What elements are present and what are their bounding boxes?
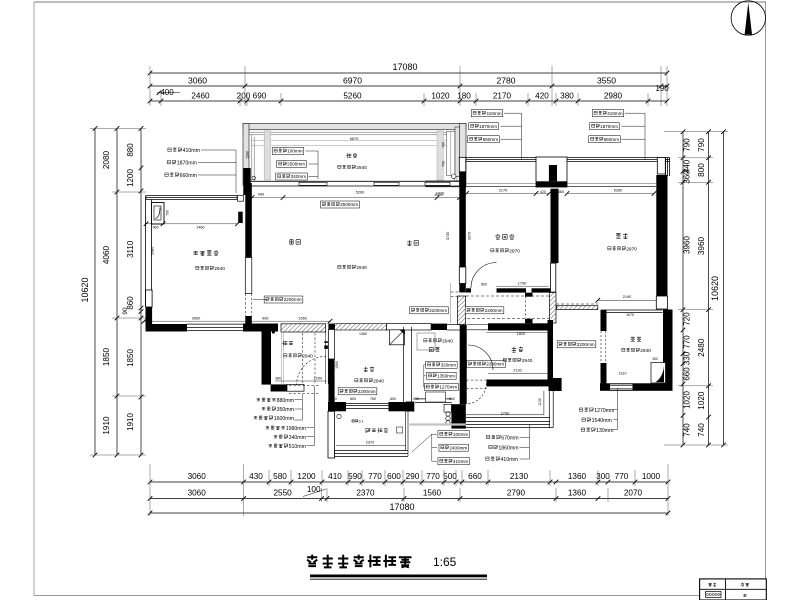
svg-text:690: 690 (253, 92, 267, 101)
svg-text:700: 700 (166, 210, 170, 216)
svg-text:790: 790 (683, 138, 692, 152)
svg-text:600: 600 (387, 472, 401, 481)
svg-text:2460: 2460 (191, 92, 210, 101)
svg-text:590: 590 (348, 472, 362, 481)
svg-text:2940: 2940 (356, 265, 367, 271)
svg-text:17080: 17080 (389, 502, 414, 512)
svg-text:410: 410 (328, 472, 342, 481)
svg-text:10620: 10620 (80, 277, 90, 302)
svg-text:1360: 1360 (359, 332, 367, 336)
svg-text:2790: 2790 (507, 489, 526, 498)
svg-text:330: 330 (683, 351, 692, 365)
svg-text:660mm: 660mm (483, 137, 498, 142)
svg-text:790: 790 (442, 142, 446, 148)
svg-text:2200mm: 2200mm (429, 308, 447, 313)
svg-text:5260: 5260 (356, 191, 364, 195)
svg-text:2370: 2370 (356, 489, 375, 498)
svg-text:380: 380 (558, 190, 564, 194)
svg-text:3370: 3370 (468, 232, 472, 240)
svg-text:760: 760 (370, 397, 376, 401)
svg-text:1200: 1200 (297, 472, 316, 481)
svg-text:2940: 2940 (302, 354, 313, 360)
svg-text:90: 90 (122, 307, 129, 315)
svg-text:1130: 1130 (538, 398, 542, 406)
svg-text:3730: 3730 (446, 232, 450, 240)
svg-text:2130: 2130 (513, 369, 521, 373)
svg-text:2500mm: 2500mm (287, 162, 305, 167)
svg-text:2170: 2170 (499, 189, 507, 193)
svg-text:770: 770 (683, 335, 692, 349)
svg-text:670mm: 670mm (501, 435, 518, 441)
svg-text:3060: 3060 (188, 76, 207, 86)
svg-text:100: 100 (307, 485, 321, 494)
svg-text:800: 800 (697, 163, 706, 177)
svg-text:3380: 3380 (151, 247, 155, 255)
svg-text:2500mm: 2500mm (340, 202, 358, 207)
svg-text:2940: 2940 (640, 348, 651, 354)
svg-text:410mm: 410mm (453, 459, 468, 464)
svg-text:2980: 2980 (604, 92, 623, 101)
svg-text:1910: 1910 (126, 413, 135, 431)
svg-text:3550: 3550 (597, 76, 616, 86)
svg-text:3110: 3110 (126, 240, 135, 258)
svg-text:1360: 1360 (568, 489, 587, 498)
svg-text:740: 740 (697, 423, 706, 437)
svg-text:430: 430 (249, 472, 263, 481)
svg-text:790: 790 (697, 138, 706, 152)
svg-text:1980mm: 1980mm (286, 426, 306, 432)
svg-text:410mm: 410mm (501, 457, 518, 463)
svg-text:660mm: 660mm (180, 173, 197, 179)
svg-text:3060: 3060 (192, 317, 200, 321)
svg-text:300: 300 (596, 472, 610, 481)
svg-text:740: 740 (683, 423, 692, 437)
svg-text:130mm: 130mm (596, 428, 613, 434)
svg-text:890: 890 (481, 283, 487, 287)
svg-text:1600mm: 1600mm (274, 416, 294, 422)
svg-text:5260: 5260 (343, 92, 362, 101)
svg-text:2190: 2190 (623, 295, 631, 299)
svg-text:2200mm: 2200mm (486, 362, 504, 367)
svg-text:760: 760 (442, 161, 446, 167)
svg-text:100mm: 100mm (287, 149, 302, 154)
svg-text:3980: 3980 (658, 232, 662, 240)
svg-text:1270mm: 1270mm (439, 385, 457, 390)
svg-text:3060: 3060 (188, 489, 207, 498)
svg-text:100mm: 100mm (453, 432, 468, 437)
svg-text:410mm: 410mm (607, 111, 622, 116)
svg-text:1020: 1020 (431, 92, 450, 101)
svg-text:10620: 10620 (710, 276, 720, 301)
svg-text:2460: 2460 (197, 226, 205, 230)
svg-text:1020: 1020 (683, 391, 692, 409)
svg-text:2550: 2550 (273, 489, 292, 498)
svg-text:1860mm: 1860mm (498, 445, 518, 451)
svg-text:350mm: 350mm (277, 407, 294, 413)
svg-text:2970: 2970 (626, 247, 637, 253)
svg-text:1850: 1850 (126, 349, 135, 367)
svg-text:1000: 1000 (642, 472, 661, 481)
svg-text:3.1: 3.1 (359, 420, 364, 424)
svg-text:1360: 1360 (568, 472, 587, 481)
svg-text:660mm: 660mm (604, 137, 619, 142)
svg-text:880: 880 (126, 143, 135, 157)
svg-text:410mm: 410mm (183, 148, 200, 154)
svg-text:1910: 1910 (102, 416, 111, 435)
svg-text:770: 770 (368, 472, 382, 481)
svg-text:1870mm: 1870mm (479, 124, 497, 129)
svg-text:360: 360 (683, 170, 692, 184)
svg-text:2200mm: 2200mm (284, 297, 302, 302)
svg-text:2130: 2130 (510, 472, 529, 481)
svg-text:1870mm: 1870mm (600, 124, 618, 129)
svg-text:600: 600 (390, 397, 396, 401)
svg-text:1350mm: 1350mm (437, 373, 455, 378)
svg-text:2370: 2370 (366, 441, 374, 445)
svg-text:1870mm: 1870mm (177, 161, 197, 167)
svg-text:3480: 3480 (551, 232, 555, 240)
svg-text:660: 660 (468, 472, 482, 481)
svg-text:1:65: 1:65 (433, 555, 457, 569)
svg-text:2080: 2080 (102, 150, 111, 169)
svg-text:1790: 1790 (518, 282, 526, 286)
svg-text:420: 420 (535, 92, 549, 101)
svg-text:770: 770 (426, 472, 440, 481)
svg-text:1560: 1560 (423, 489, 442, 498)
svg-text:6970: 6970 (343, 76, 362, 86)
svg-text:2940: 2940 (522, 358, 533, 364)
svg-text:200: 200 (237, 92, 251, 101)
svg-text:1270mm: 1270mm (594, 408, 614, 414)
svg-text:1560: 1560 (335, 361, 339, 369)
svg-text:1540mm: 1540mm (592, 418, 612, 424)
svg-text:1580: 1580 (246, 151, 250, 159)
svg-text:1020: 1020 (434, 193, 442, 197)
svg-text:1560: 1560 (298, 317, 306, 321)
svg-text:380: 380 (275, 376, 281, 380)
svg-text:2970: 2970 (509, 249, 520, 255)
svg-text:350: 350 (652, 357, 658, 361)
svg-text:1020: 1020 (697, 391, 706, 410)
svg-text:3960: 3960 (683, 236, 692, 254)
svg-text:880mm: 880mm (277, 398, 294, 404)
svg-text:2780: 2780 (496, 76, 515, 86)
svg-text:2940: 2940 (356, 165, 367, 171)
svg-text:180: 180 (457, 92, 471, 101)
svg-text:1200: 1200 (314, 376, 322, 380)
svg-text:990: 990 (262, 317, 268, 321)
svg-text:2170: 2170 (493, 92, 512, 101)
svg-text:720: 720 (683, 312, 692, 326)
svg-text:400: 400 (153, 226, 159, 230)
svg-text:2070: 2070 (624, 489, 643, 498)
svg-text:2200mm: 2200mm (358, 389, 376, 394)
svg-text:770: 770 (615, 472, 629, 481)
svg-text:5280: 5280 (614, 189, 622, 193)
svg-text:2480: 2480 (697, 338, 706, 357)
svg-text:2940: 2940 (214, 266, 225, 272)
svg-text:2400mm: 2400mm (449, 445, 467, 450)
svg-text:17080: 17080 (392, 62, 417, 72)
svg-text:500: 500 (443, 472, 457, 481)
svg-text:4060: 4060 (102, 245, 111, 264)
svg-text:2940: 2940 (442, 339, 453, 345)
svg-text:3060: 3060 (188, 472, 207, 481)
svg-text:410: 410 (331, 397, 337, 401)
svg-text:2200mm: 2200mm (577, 342, 595, 347)
svg-text:2200mm: 2200mm (485, 308, 503, 313)
svg-text:1200: 1200 (126, 169, 135, 187)
svg-text:420: 420 (540, 190, 546, 194)
svg-text:600: 600 (350, 397, 356, 401)
svg-text:660: 660 (683, 367, 692, 381)
svg-text:1070: 1070 (626, 313, 634, 317)
svg-text:290: 290 (406, 472, 420, 481)
svg-text:340mm: 340mm (291, 174, 306, 179)
svg-text:990: 990 (258, 193, 264, 197)
svg-text:6870: 6870 (350, 137, 358, 141)
svg-text:2790: 2790 (501, 412, 509, 416)
svg-text:2940: 2940 (373, 379, 384, 385)
svg-text:340mm: 340mm (289, 435, 306, 441)
svg-text:410mm: 410mm (486, 111, 501, 116)
svg-text:580: 580 (273, 472, 287, 481)
svg-text:1310: 1310 (619, 372, 627, 376)
svg-text:3960: 3960 (697, 236, 706, 255)
svg-text:320mm: 320mm (441, 362, 456, 367)
svg-text:1850: 1850 (102, 347, 111, 366)
svg-text:380: 380 (560, 92, 574, 101)
svg-text:510mm: 510mm (289, 444, 306, 450)
